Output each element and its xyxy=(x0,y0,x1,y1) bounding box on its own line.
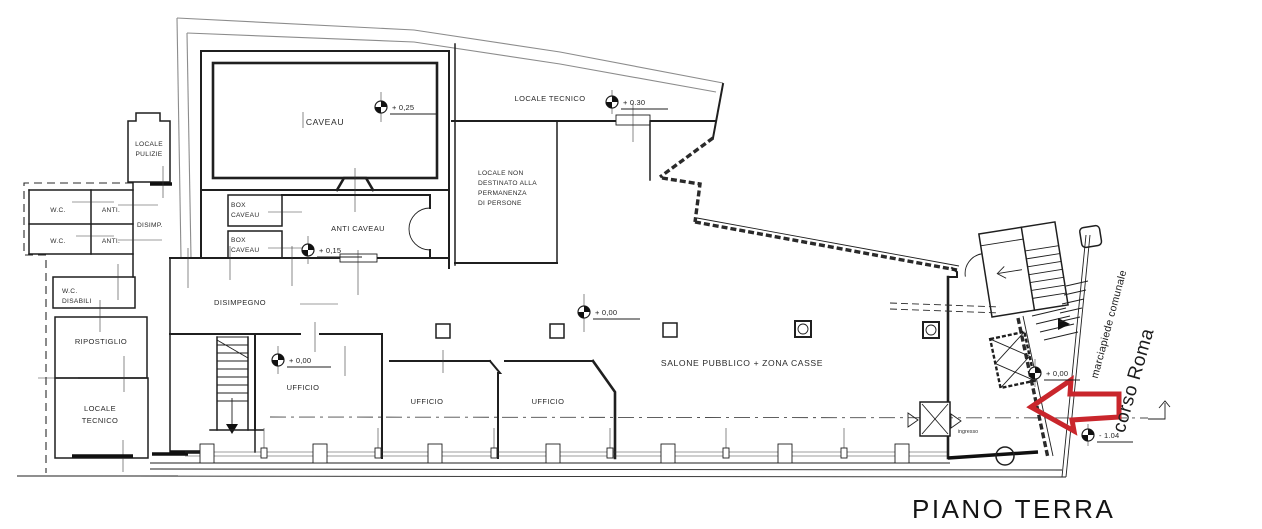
room-label: W.C. xyxy=(50,238,66,245)
svg-text:+ 0,00: + 0,00 xyxy=(595,308,617,317)
salone-north-boundary xyxy=(695,218,959,277)
mullion xyxy=(723,448,729,458)
anti-caveau-threshold xyxy=(340,254,377,262)
storefront-band xyxy=(17,428,1066,477)
salone-columns xyxy=(436,321,939,338)
room-label: PERMANENZA xyxy=(478,190,527,197)
anti-caveau-door-leaf xyxy=(409,208,430,229)
stair-block-east xyxy=(959,215,1110,320)
column xyxy=(550,324,564,338)
stair-direction-arrow xyxy=(226,424,238,434)
room-label: CAVEAU xyxy=(231,247,259,254)
room-label: DI PERSONE xyxy=(478,200,522,207)
elevation-marker: + 0,00 xyxy=(578,294,640,332)
room-label: ANTI. xyxy=(102,207,120,214)
svg-text:+ 0,00: + 0,00 xyxy=(1046,369,1068,378)
direction-arrow-icon xyxy=(1148,401,1170,419)
pilaster xyxy=(546,444,560,463)
room-label: DISIMP. xyxy=(137,222,163,229)
room-label: CAVEAU xyxy=(231,212,259,219)
mullion xyxy=(491,448,497,458)
svg-text:+ 0.30: + 0.30 xyxy=(623,98,645,107)
page-title: PIANO TERRA xyxy=(912,494,1115,524)
room-label: BOX xyxy=(231,237,246,244)
stair-annex xyxy=(1079,225,1102,248)
mullion xyxy=(261,448,267,458)
room-label: W.C. xyxy=(50,207,66,214)
svg-text:+ 0,00: + 0,00 xyxy=(289,356,311,365)
pilaster xyxy=(200,444,214,463)
room-label: LOCALE xyxy=(84,404,116,413)
column-round xyxy=(795,321,811,337)
staircase-west xyxy=(170,337,263,452)
column xyxy=(436,324,450,338)
elevation-marker: + 0,00 xyxy=(272,346,331,374)
stair-door-arc xyxy=(962,254,985,277)
stair-lower-flight xyxy=(1032,308,1078,340)
room-label-caveau: CAVEAU xyxy=(306,117,344,127)
room-label: BOX xyxy=(231,202,246,209)
mullion xyxy=(375,448,381,458)
room-label-ingresso: ingresso xyxy=(958,429,978,435)
pilaster xyxy=(895,444,909,463)
column xyxy=(663,323,677,337)
room-label: PULIZIE xyxy=(135,151,162,158)
room-label: ANTI CAVEAU xyxy=(331,224,385,233)
room-label: DISIMPEGNO xyxy=(214,298,266,307)
pilaster xyxy=(661,444,675,463)
room-label: UFFICIO xyxy=(411,397,444,406)
room-label: UFFICIO xyxy=(532,397,565,406)
property-dashed-boundary xyxy=(24,183,133,473)
west-service-rooms xyxy=(17,264,178,476)
room-label: LOCALE xyxy=(135,141,163,148)
street-labels: marciapiede comunale corso Roma xyxy=(1089,269,1159,435)
room-label-salone: SALONE PUBBLICO + ZONA CASSE xyxy=(661,358,823,368)
svg-text:+ 0,15: + 0,15 xyxy=(319,246,341,255)
door-swing-mark xyxy=(908,413,918,427)
pilaster xyxy=(778,444,792,463)
column-round xyxy=(923,322,939,338)
passage-dashed-lines xyxy=(890,303,1000,313)
elevation-marker: + 0,25 xyxy=(375,92,438,122)
elevation-marker: + 0.30 xyxy=(606,90,668,114)
anti-caveau-door-leaf xyxy=(409,229,430,250)
mullion xyxy=(841,448,847,458)
floor-plan-drawing: + 0,25 + 0.30 + 0,15 + 0,00 + 0,00 + 0,0… xyxy=(0,0,1262,529)
office-walls xyxy=(255,334,615,458)
floor-plan-page: + 0,25 + 0.30 + 0,15 + 0,00 + 0,00 + 0,0… xyxy=(0,0,1262,529)
room-label: TECNICO xyxy=(82,416,119,425)
north-rooms xyxy=(452,44,723,265)
elevation-markers: + 0,25 + 0.30 + 0,15 + 0,00 + 0,00 + 0,0… xyxy=(272,90,1133,446)
room-label: LOCALE NON xyxy=(478,170,524,177)
room-label: DISABILI xyxy=(62,298,92,305)
mullion xyxy=(607,448,613,458)
svg-text:+ 0,25: + 0,25 xyxy=(392,103,414,112)
room-label: W.C. xyxy=(62,288,78,295)
pilaster xyxy=(428,444,442,463)
centerline xyxy=(270,417,1148,418)
room-label: DESTINATO ALLA xyxy=(478,180,537,187)
room-label: RIPOSTIGLIO xyxy=(75,337,127,346)
sidewalk-label: marciapiede comunale xyxy=(1089,269,1129,380)
caveau-vault xyxy=(201,51,449,258)
room-label: UFFICIO xyxy=(287,383,320,392)
room-label: ANTI. xyxy=(102,238,120,245)
pilaster xyxy=(313,444,327,463)
disimpegno-area xyxy=(170,246,382,452)
wc-block xyxy=(29,183,162,277)
door-swing-mark xyxy=(951,414,961,428)
room-label: LOCALE TECNICO xyxy=(515,94,586,103)
